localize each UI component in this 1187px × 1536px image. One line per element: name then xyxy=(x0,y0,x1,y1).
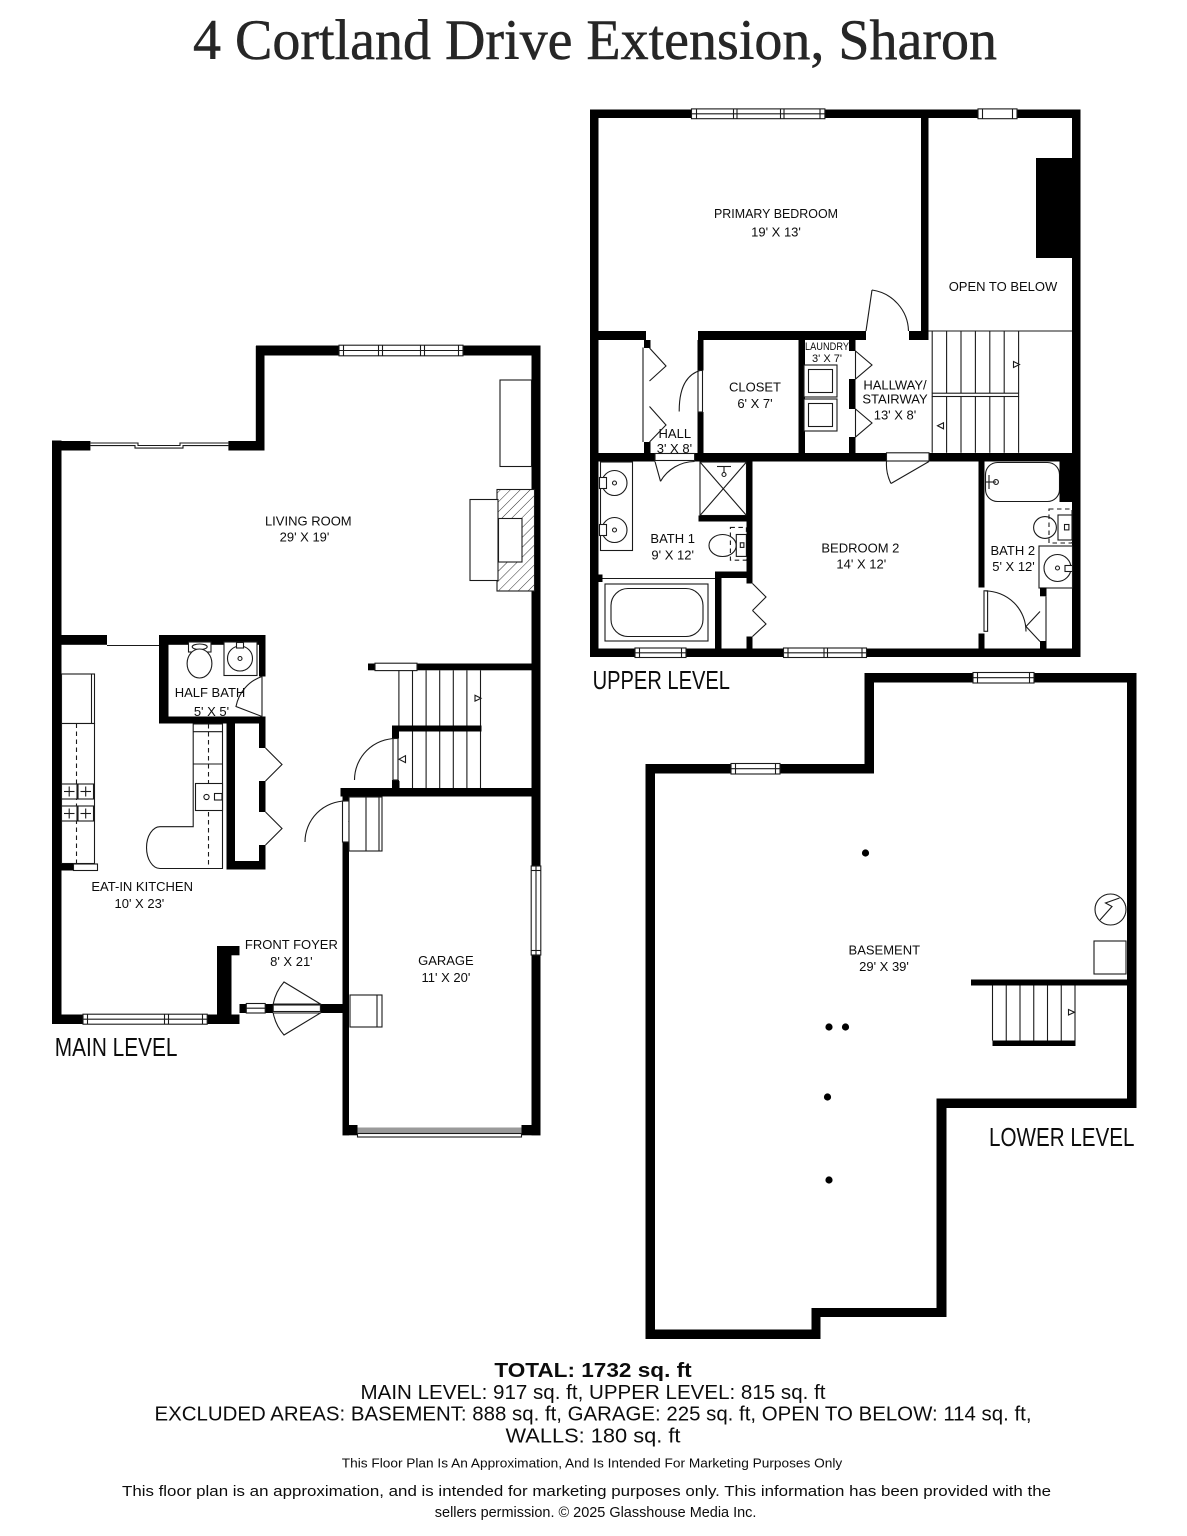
svg-text:LOWER LEVEL: LOWER LEVEL xyxy=(989,1124,1135,1152)
svg-text:EAT-IN KITCHEN: EAT-IN KITCHEN xyxy=(91,879,193,894)
svg-text:PRIMARY BEDROOM: PRIMARY BEDROOM xyxy=(714,206,838,221)
svg-text:29' X 19': 29' X 19' xyxy=(280,530,330,545)
svg-text:HALF BATH: HALF BATH xyxy=(175,685,246,700)
svg-text:STAIRWAY: STAIRWAY xyxy=(862,392,928,407)
svg-text:TOTAL: 1732 sq. ft: TOTAL: 1732 sq. ft xyxy=(494,1359,691,1382)
svg-text:OPEN TO BELOW: OPEN TO BELOW xyxy=(949,279,1058,294)
svg-text:8' X 21': 8' X 21' xyxy=(270,954,313,969)
svg-text:3' X 7': 3' X 7' xyxy=(812,353,842,365)
svg-text:6' X 7': 6' X 7' xyxy=(737,396,772,411)
svg-text:HALLWAY/: HALLWAY/ xyxy=(863,378,927,393)
svg-text:5' X 12': 5' X 12' xyxy=(992,559,1035,574)
svg-text:MAIN LEVEL: MAIN LEVEL xyxy=(55,1034,178,1062)
svg-text:This floor plan is an approxim: This floor plan is an approximation, and… xyxy=(122,1483,1051,1500)
svg-text:UPPER LEVEL: UPPER LEVEL xyxy=(593,667,730,695)
svg-text:29' X 39': 29' X 39' xyxy=(859,959,909,974)
svg-text:11' X 20': 11' X 20' xyxy=(421,970,470,985)
svg-text:BATH 2: BATH 2 xyxy=(991,543,1036,558)
svg-text:This Floor Plan Is An Approxim: This Floor Plan Is An Approximation, And… xyxy=(342,1456,843,1471)
svg-text:HALL: HALL xyxy=(659,426,692,441)
svg-text:FRONT FOYER: FRONT FOYER xyxy=(245,937,338,952)
svg-text:LIVING ROOM: LIVING ROOM xyxy=(265,514,352,529)
svg-text:BATH 1: BATH 1 xyxy=(650,531,695,546)
svg-text:LAUNDRY: LAUNDRY xyxy=(805,341,850,353)
svg-text:MAIN LEVEL: 917 sq. ft, UPPER: MAIN LEVEL: 917 sq. ft, UPPER LEVEL: 815… xyxy=(361,1381,826,1404)
svg-text:BASEMENT: BASEMENT xyxy=(849,943,921,958)
svg-text:19' X 13': 19' X 13' xyxy=(751,225,801,240)
svg-text:CLOSET: CLOSET xyxy=(729,380,781,395)
svg-text:sellers permission. © 2025 Gla: sellers permission. © 2025 Glasshouse Me… xyxy=(435,1504,757,1521)
svg-text:EXCLUDED AREAS: BASEMENT: 888: EXCLUDED AREAS: BASEMENT: 888 sq. ft, GA… xyxy=(155,1403,1032,1426)
svg-text:10' X 23': 10' X 23' xyxy=(115,896,165,911)
svg-text:5' X 5': 5' X 5' xyxy=(194,704,229,719)
svg-text:4 Cortland Drive Extension, Sh: 4 Cortland Drive Extension, Sharon xyxy=(193,9,997,72)
svg-text:BEDROOM 2: BEDROOM 2 xyxy=(821,541,899,556)
svg-text:WALLS: 180 sq. ft: WALLS: 180 sq. ft xyxy=(506,1424,681,1447)
svg-text:14' X 12': 14' X 12' xyxy=(836,557,886,572)
svg-text:9' X 12': 9' X 12' xyxy=(651,547,694,562)
svg-text:GARAGE: GARAGE xyxy=(418,953,474,968)
svg-text:13' X 8': 13' X 8' xyxy=(874,408,917,423)
